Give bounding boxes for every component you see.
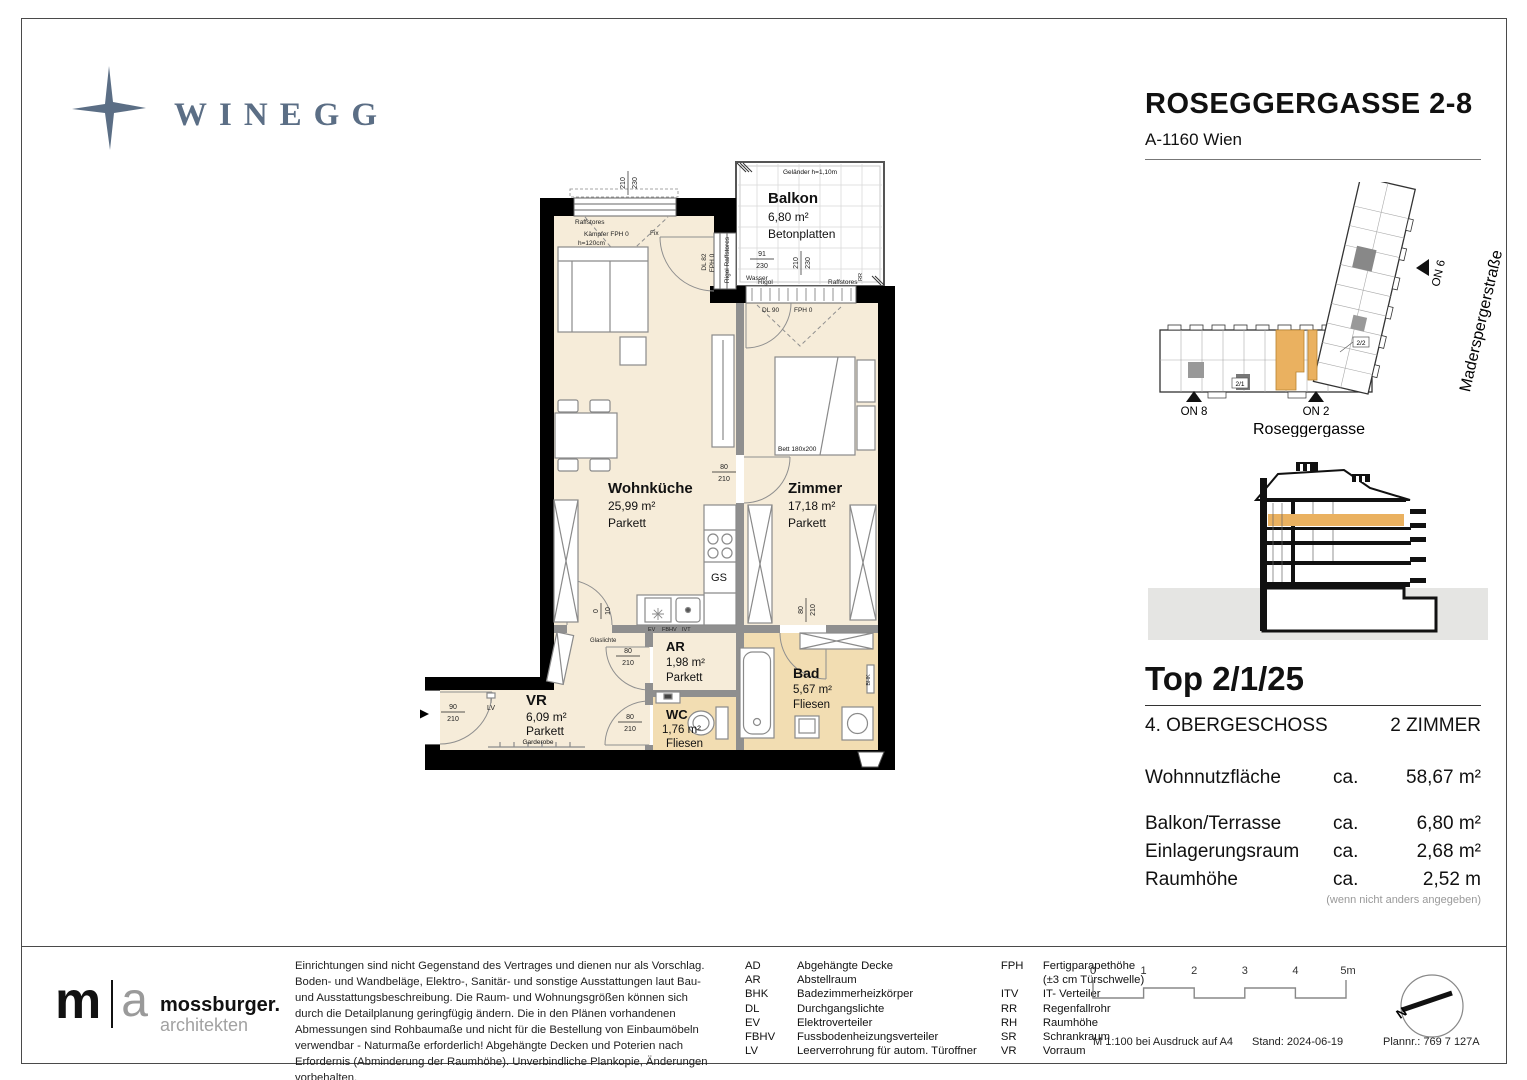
metric-row: Raumhöhe ca. 2,52 m <box>1145 869 1481 891</box>
north-needle <box>1402 993 1452 1010</box>
lv-label: LV <box>487 705 495 712</box>
bad-area: 5,67 m² <box>793 684 832 696</box>
svg-text:210: 210 <box>718 476 730 483</box>
svg-text:210: 210 <box>624 726 636 733</box>
svg-text:0: 0 <box>1090 965 1096 977</box>
ivt-label: IVT <box>682 627 691 633</box>
unit-floor: 4. OBERGESCHOSS <box>1145 715 1328 737</box>
architect-name: mossburger. architekten <box>160 995 280 1035</box>
street-madersperger: Maderspergerstraße <box>1457 248 1506 393</box>
svg-text:230: 230 <box>756 263 768 270</box>
project-header: ROSEGGERGASSE 2-8 A-1160 Wien <box>1145 88 1481 160</box>
h120-label: h=120cm <box>578 240 605 247</box>
railing-label: Geländer h=1,10m <box>783 169 837 176</box>
zimmer-floor: Parkett <box>788 516 827 530</box>
bathtub <box>740 648 774 738</box>
architect-logo-divider <box>111 980 113 1028</box>
entrance-on6: ON 6 <box>1430 259 1448 288</box>
unit-roomcount: 2 ZIMMER <box>1390 715 1481 737</box>
balkon-name: Balkon <box>768 190 818 207</box>
rigol-label: Rigol <box>758 279 773 286</box>
svg-text:91: 91 <box>758 251 766 258</box>
dl90-label: DL 90 <box>762 307 779 314</box>
brand-logo: WINEGG <box>72 66 389 150</box>
svg-text:0: 0 <box>593 609 600 613</box>
balkon-floor: Betonplatten <box>768 227 835 241</box>
svg-text:10: 10 <box>605 607 612 615</box>
svg-text:80: 80 <box>798 606 805 614</box>
raffstores-label-2: Raffstores <box>828 279 858 286</box>
north-arrow: N <box>1392 966 1474 1048</box>
architect-logo-m: m <box>55 978 101 1025</box>
ar-area: 1,98 m² <box>666 657 705 669</box>
fix-label: Fix <box>650 230 659 237</box>
fph0-label-1: FPH 0 <box>709 253 716 272</box>
svg-text:210: 210 <box>810 604 817 616</box>
fbhv-label: FBHV <box>662 627 677 633</box>
svg-text:5m: 5m <box>1340 965 1355 977</box>
svg-text:210: 210 <box>622 660 634 667</box>
wohnkueche-floor: Parkett <box>608 516 647 530</box>
footer-separator <box>21 946 1506 947</box>
svg-text:210: 210 <box>793 257 800 269</box>
disclaimer-text: Einrichtungen sind nicht Gegenstand des … <box>295 958 713 1080</box>
print-stand: Stand: 2024-06-19 <box>1252 1036 1343 1048</box>
bhk-label: BHK <box>866 674 872 686</box>
floorplan-drawing: 2/1/25 Balkon 6,80 m² Betonplatten Gelän… <box>420 155 900 805</box>
svg-text:230: 230 <box>632 177 639 189</box>
bad-name: Bad <box>793 665 819 681</box>
compass-star-icon <box>72 66 146 150</box>
garderobe-label: Garderobe <box>522 739 553 746</box>
wohnkueche-area: 25,99 m² <box>608 499 655 513</box>
rigol-raffstores-label: Rigol Raffstores <box>724 236 731 283</box>
glaslichte-label: Glaslichte <box>590 638 617 644</box>
project-title: ROSEGGERGASSE 2-8 <box>1145 88 1481 121</box>
svg-text:80: 80 <box>626 714 634 721</box>
dim-top-window: 210 230 <box>620 171 639 195</box>
plan-sheet: WINEGG ROSEGGERGASSE 2-8 A-1160 Wien <box>0 0 1527 1080</box>
vr-floor: Parkett <box>526 724 565 738</box>
kaempfer-label: Kämpfer FPH 0 <box>584 231 629 238</box>
svg-text:90: 90 <box>449 704 457 711</box>
zimmer-name: Zimmer <box>788 480 842 497</box>
architect-logo-a: a <box>121 978 148 1024</box>
bad-floor: Fliesen <box>793 699 830 711</box>
print-scale: M 1:100 bei Ausdruck auf A4 <box>1093 1036 1233 1048</box>
rr-label: RR <box>858 273 864 281</box>
metrics-note: (wenn nicht anders angegeben) <box>1145 894 1481 906</box>
svg-text:210: 210 <box>447 716 459 723</box>
wc-area: 1,76 m² <box>662 724 701 736</box>
bed <box>775 357 875 455</box>
vr-name: VR <box>526 692 547 709</box>
unit-tag-22: 2/2 <box>1356 340 1365 347</box>
svg-text:1: 1 <box>1141 965 1147 977</box>
project-subtitle: A-1160 Wien <box>1145 130 1481 160</box>
metric-row: Wohnnutzfläche ca. 58,67 m² <box>1145 767 1481 789</box>
unit-info-panel: Top 2/1/25 4. OBERGESCHOSS 2 ZIMMER Wohn… <box>1145 660 1481 906</box>
scale-bar: 0 1 2 3 4 5m <box>1085 962 1370 1012</box>
unit-tag-21: 2/1 <box>1235 381 1244 388</box>
svg-text:230: 230 <box>805 257 812 269</box>
bath-sink <box>795 716 819 738</box>
balkon-area: 6,80 m² <box>768 210 809 224</box>
svg-text:3: 3 <box>1242 965 1248 977</box>
building-section <box>1148 448 1488 648</box>
zimmer-area: 17,18 m² <box>788 499 835 513</box>
street-roseggergasse: Roseggergasse <box>1253 421 1365 437</box>
ar-name: AR <box>666 639 685 654</box>
site-building-angled-wing <box>1313 182 1420 395</box>
washing-machine <box>842 707 873 740</box>
entrance-on8: ON 8 <box>1181 406 1208 418</box>
ev-label: EV <box>648 627 656 633</box>
legend-col-1: ADAbgehängte Decke ARAbstellraum BHKBade… <box>745 960 977 1057</box>
site-plan: 2/1 2/2 ON 8 ON 2 ON 6 Roseggergasse Mad… <box>1148 182 1508 437</box>
architect-logo: m a <box>55 978 148 1028</box>
metric-row: Einlagerungsraum ca. 2,68 m² <box>1145 841 1481 863</box>
ar-floor: Parkett <box>666 672 703 684</box>
metric-row: Balkon/Terrasse ca. 6,80 m² <box>1145 813 1481 835</box>
dishwasher-label: GS <box>711 572 727 584</box>
wohnkueche-name: Wohnküche <box>608 480 693 497</box>
entrance-on2: ON 2 <box>1303 406 1330 418</box>
svg-text:80: 80 <box>720 464 728 471</box>
unit-metrics: Wohnnutzfläche ca. 58,67 m² Balkon/Terra… <box>1145 767 1481 906</box>
svg-text:210: 210 <box>620 177 627 189</box>
unit-title: Top 2/1/25 <box>1145 660 1481 706</box>
raffstores-label: Raffstores <box>575 219 605 226</box>
wc-basin <box>656 692 680 703</box>
vr-area: 6,09 m² <box>526 710 567 724</box>
bed-label: Bett 180x200 <box>778 446 817 453</box>
dl82-label: DL 82 <box>701 253 708 270</box>
svg-text:2: 2 <box>1191 965 1197 977</box>
brand-name: WINEGG <box>174 97 389 134</box>
svg-text:4: 4 <box>1292 965 1298 977</box>
svg-text:80: 80 <box>624 648 632 655</box>
wc-floor: Fliesen <box>666 738 703 750</box>
wc-name: WC <box>666 707 688 722</box>
highlighted-floor <box>1268 514 1404 526</box>
fph0-label-2: FPH 0 <box>794 307 813 314</box>
